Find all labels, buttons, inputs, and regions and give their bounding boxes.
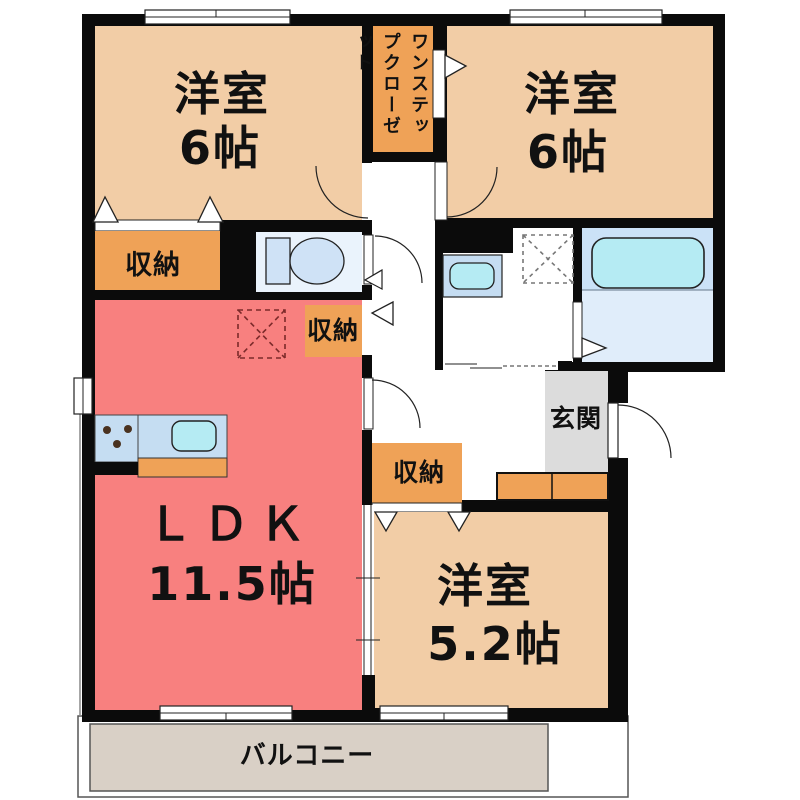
bedroom-bottom-name: 洋室 [385, 562, 585, 610]
corridor-floor [372, 162, 435, 443]
wall-stub [362, 675, 375, 708]
closet-door-leaf [433, 50, 445, 118]
storage-bottom-door-track [372, 503, 462, 512]
toilet-bowl [290, 238, 344, 284]
storage-left-label: 収納 [93, 252, 213, 280]
room-bedroom-top-right [447, 26, 713, 218]
bedroom-top-right-doorway [435, 162, 447, 220]
kitchen-stove [95, 415, 138, 462]
bathroom-floor-lower [582, 290, 713, 362]
floorplan-canvas: 洋室 6帖 洋室 6帖 ワンステップクローゼット 収納 収納 収納 ＬＤＫ 11… [0, 0, 800, 800]
bathtub [592, 238, 704, 288]
wall-stub [558, 361, 572, 372]
balcony-label: バルコニー [207, 743, 407, 770]
window [160, 706, 292, 720]
bedroom-top-left-name: 洋室 [122, 70, 322, 118]
bedroom-bottom-size: 5.2帖 [395, 620, 595, 668]
window [145, 10, 290, 24]
ldk-name: ＬＤＫ [131, 500, 331, 548]
entrance-label: 玄関 [536, 406, 616, 432]
storage-middle-label: 収納 [283, 318, 383, 344]
bedroom-top-left-doorway [362, 163, 372, 220]
ldk-door-leaf [364, 378, 373, 429]
toilet-tank [266, 238, 290, 284]
ldk-size: 11.5帖 [132, 560, 332, 608]
kitchen-cabinet [138, 458, 227, 477]
wall-stub [85, 462, 138, 475]
bedroom-top-right-size: 6帖 [468, 128, 668, 176]
kitchen-sink [172, 421, 216, 451]
storage-bottom-label: 収納 [369, 460, 469, 486]
washbasin [450, 263, 494, 289]
bathroom-door-leaf [573, 302, 582, 358]
window [74, 378, 92, 414]
window [380, 706, 508, 720]
window [510, 10, 662, 24]
bedroom-top-right-name: 洋室 [472, 70, 672, 118]
washroom-nook [513, 228, 573, 253]
bedroom-top-left-size: 6帖 [120, 124, 320, 172]
closet-label: ワンステップクローゼット [376, 32, 432, 156]
